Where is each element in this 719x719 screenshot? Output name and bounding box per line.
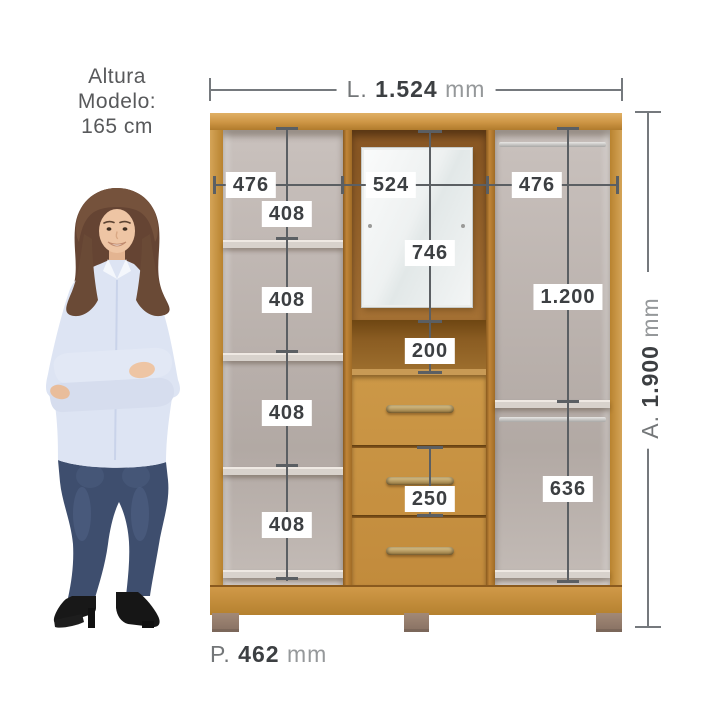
left-shelf-1 [223, 240, 343, 248]
dim-label-left-width: 476 [226, 172, 276, 198]
partition-right [486, 130, 495, 585]
base-plinth [210, 585, 622, 615]
dim-label-shelf-gap-2: 408 [262, 287, 312, 313]
dim-label-mirror-height: 746 [405, 240, 455, 266]
dim-label-right-width: 476 [512, 172, 562, 198]
drawer-handle-2 [386, 477, 454, 485]
dim-label-right-lower: 636 [543, 476, 593, 502]
clothes-rail-top [499, 142, 606, 147]
model-note-line-3: 165 cm [52, 114, 182, 139]
model-note-line-2: Modelo: [52, 89, 182, 114]
clothes-rail-lower [499, 417, 606, 422]
model-height-note: Altura Modelo: 165 cm [52, 64, 182, 139]
mirror-screw-left [368, 224, 372, 228]
depth-label: P. 462 mm [210, 641, 327, 668]
dim-label-shelf-gap-3: 408 [262, 400, 312, 426]
arm-upper [54, 348, 172, 383]
dim-label-shelf-gap-4: 408 [262, 512, 312, 538]
foot-right [596, 613, 622, 632]
foot-left [212, 613, 239, 632]
eye-left [107, 227, 112, 231]
model-note-line-1: Altura [52, 64, 182, 89]
wardrobe-left-side [210, 130, 223, 585]
height-label: A. 1.900 mm [634, 287, 666, 448]
foot-center [404, 613, 429, 632]
mirror-screw-right [461, 224, 465, 228]
dim-label-right-upper: 1.200 [533, 284, 602, 310]
partition-left [343, 130, 352, 585]
eye-right [123, 227, 128, 231]
dim-label-shelf-gap-1: 408 [262, 201, 312, 227]
dim-label-drawer-height: 250 [405, 486, 455, 512]
dim-label-niche-height: 200 [405, 338, 455, 364]
drawer-handle-1 [386, 405, 454, 413]
right-column-floor [495, 570, 610, 578]
product-dimension-diagram: Altura Modelo: 165 cm [0, 0, 719, 719]
width-label: L. 1.524 mm [337, 73, 496, 105]
model-photo [24, 184, 200, 632]
left-shelf-2 [223, 353, 343, 361]
right-shelf [495, 400, 610, 408]
dim-label-center-width: 524 [366, 172, 416, 198]
wardrobe-right-side [610, 130, 622, 585]
left-shelf-3 [223, 467, 343, 475]
drawer-handle-3 [386, 547, 454, 555]
right-column-interior [495, 130, 610, 585]
